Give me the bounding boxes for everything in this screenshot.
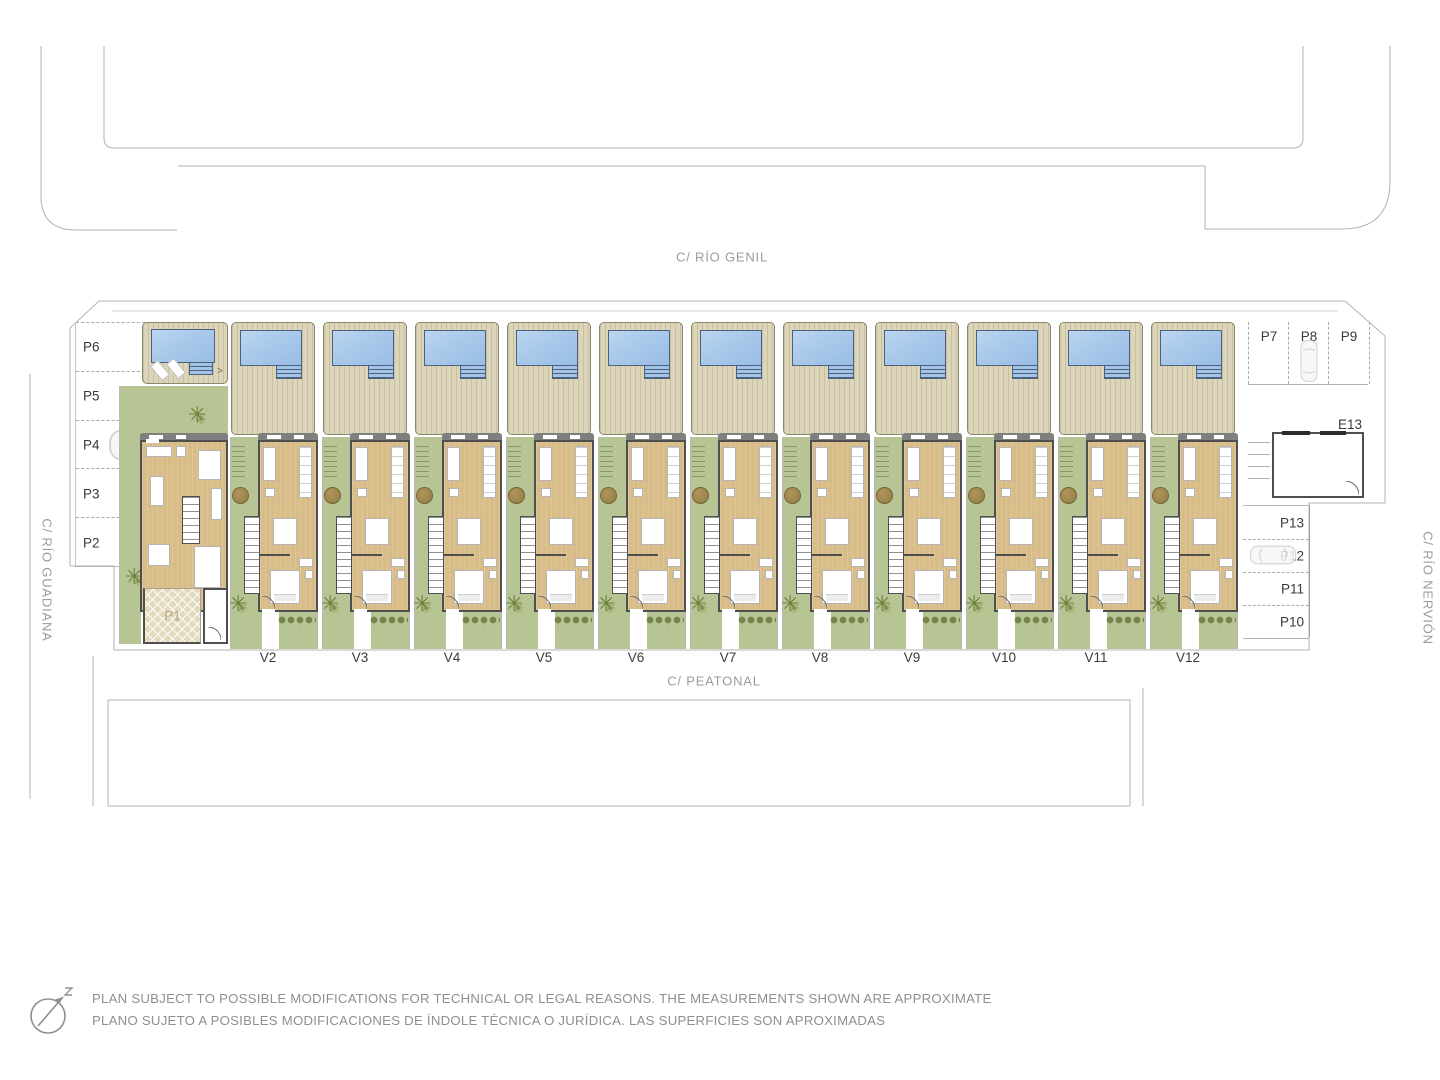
pool-deck <box>507 322 591 435</box>
bathroom-wall <box>996 554 1026 556</box>
door-opening <box>446 609 459 613</box>
villa-label: V3 <box>338 650 382 665</box>
dining-table <box>198 450 221 480</box>
entry-path <box>630 609 647 649</box>
kitchen <box>146 446 172 457</box>
villa-unit: V6 <box>596 320 688 664</box>
entry-porch <box>203 588 228 644</box>
kitchen <box>667 446 680 498</box>
tree-icon <box>1152 487 1169 504</box>
dining-table <box>1101 518 1125 545</box>
pool-steps <box>1104 365 1130 379</box>
tree-icon <box>416 487 433 504</box>
villa-label: V12 <box>1166 650 1210 665</box>
bathroom-wall <box>352 554 382 556</box>
toilet <box>305 570 313 579</box>
side-table <box>817 488 827 497</box>
kitchen <box>851 446 864 498</box>
side-table <box>1093 488 1103 497</box>
kitchen <box>299 446 312 498</box>
pool-steps <box>736 365 762 379</box>
sofa <box>355 447 368 481</box>
private-parking-space: P1 <box>143 588 201 644</box>
villa-label: V9 <box>890 650 934 665</box>
dining-table <box>549 518 573 545</box>
swimming-pool <box>1160 330 1222 366</box>
street-label-rio-genil: C/ RÍO GENIL <box>676 250 768 265</box>
door-arc <box>538 596 551 609</box>
villa-unit: V11 <box>1056 320 1148 664</box>
dining-table <box>641 518 665 545</box>
toilet <box>857 570 865 579</box>
dining-table <box>457 518 481 545</box>
parking-strip-bottom-right: P13 P12 P11 P10 <box>1243 505 1310 637</box>
villa-unit: V3 <box>320 320 412 664</box>
bathroom-sink <box>299 558 313 567</box>
stairs <box>1072 516 1088 594</box>
villa-label: V4 <box>430 650 474 665</box>
house-floorplan <box>1086 440 1146 612</box>
toilet <box>397 570 405 579</box>
toilet <box>1133 570 1141 579</box>
parking-stall-label: P6 <box>83 340 100 355</box>
bathroom-wall <box>720 554 750 556</box>
swimming-pool <box>516 330 578 366</box>
palm-tree-icon <box>1057 593 1075 615</box>
toilet <box>1225 570 1233 579</box>
pool-deck: > <box>142 322 228 384</box>
villa-unit: V9 <box>872 320 964 664</box>
house-floorplan <box>902 440 962 612</box>
kitchen <box>1127 446 1140 498</box>
tree-icon <box>876 487 893 504</box>
palm-tree-icon <box>873 593 891 615</box>
storage-room-label: E13 <box>1338 417 1362 432</box>
villa-unit-end: > P1 <box>115 320 228 664</box>
bathroom-sink <box>667 558 681 567</box>
tree-icon <box>600 487 617 504</box>
door-opening <box>630 609 643 613</box>
bathroom-sink <box>759 558 773 567</box>
stairs <box>520 516 536 594</box>
door-opening <box>262 609 275 613</box>
shrubs <box>278 615 316 627</box>
parking-stall: P7 <box>1248 322 1289 384</box>
shrubs <box>370 615 408 627</box>
swimming-pool <box>884 330 946 366</box>
kitchen <box>943 446 956 498</box>
house-floorplan <box>442 440 502 612</box>
villa-unit: V4 <box>412 320 504 664</box>
pool-deck <box>231 322 315 435</box>
pool-deck <box>875 322 959 435</box>
pergola <box>1152 443 1165 477</box>
disclaimer-line-es: PLANO SUJETO A POSIBLES MODIFICACIONES D… <box>92 1013 885 1028</box>
site-plan: C/ RÍO GENIL C/ RÍO GUADIANA C/ RÍO NERV… <box>0 0 1440 1080</box>
toilet <box>489 570 497 579</box>
door-opening <box>354 609 367 613</box>
sofa <box>1183 447 1196 481</box>
entry-path <box>722 609 739 649</box>
kitchen <box>1035 446 1048 498</box>
house-floorplan <box>534 440 594 612</box>
door-opening <box>146 439 159 443</box>
entry-path <box>1090 609 1107 649</box>
door-arc <box>446 596 459 609</box>
sofa <box>999 447 1012 481</box>
swimming-pool <box>976 330 1038 366</box>
swimming-pool <box>700 330 762 366</box>
shrubs <box>646 615 684 627</box>
dining-table <box>1009 518 1033 545</box>
side-table <box>633 488 643 497</box>
door-arc <box>814 596 827 609</box>
door-opening <box>1182 609 1195 613</box>
villa-label: V8 <box>798 650 842 665</box>
palm-tree-icon <box>781 593 799 615</box>
bathroom-wall <box>628 554 658 556</box>
tree-icon <box>508 487 525 504</box>
villa-label: V6 <box>614 650 658 665</box>
bathroom-wall <box>260 554 290 556</box>
bathroom-wall <box>1180 554 1210 556</box>
shrubs <box>462 615 500 627</box>
palm-tree-icon <box>321 593 339 615</box>
palm-tree-icon <box>229 593 247 615</box>
north-arrow-icon <box>22 984 78 1042</box>
bed <box>194 546 221 588</box>
door-arc <box>906 596 919 609</box>
toilet <box>673 570 681 579</box>
garden <box>119 386 141 644</box>
sofa <box>815 447 828 481</box>
parking-stall-label: P11 <box>1281 581 1304 596</box>
door-arc <box>630 596 643 609</box>
tree-icon <box>968 487 985 504</box>
pool-deck <box>415 322 499 435</box>
entry-path <box>446 609 463 649</box>
door-opening <box>722 609 735 613</box>
villa-label: V10 <box>982 650 1026 665</box>
side-table <box>1185 488 1195 497</box>
pergola <box>600 443 613 477</box>
entry-path <box>998 609 1015 649</box>
palm-tree-icon <box>413 593 431 615</box>
swimming-pool <box>608 330 670 366</box>
pool-deck <box>323 322 407 435</box>
entry-path <box>538 609 555 649</box>
parking-stall: P13 <box>1243 506 1309 540</box>
kitchen <box>391 446 404 498</box>
door-arc <box>1090 596 1103 609</box>
villa-unit: V2 <box>228 320 320 664</box>
pool-deck <box>1151 322 1235 435</box>
villa-unit: V10 <box>964 320 1056 664</box>
door-opening <box>906 609 919 613</box>
palm-tree-icon <box>188 404 206 426</box>
palm-tree-icon <box>689 593 707 615</box>
parking-stall-label: P9 <box>1341 329 1358 344</box>
palm-tree-icon <box>965 593 983 615</box>
kitchen <box>483 446 496 498</box>
parking-stall-label: P10 <box>1280 614 1304 629</box>
tree-icon <box>232 487 249 504</box>
pergola <box>1060 443 1073 477</box>
villa-unit: V12 <box>1148 320 1240 664</box>
pergola <box>876 443 889 477</box>
street-label-peatonal: C/ PEATONAL <box>667 674 761 689</box>
bathroom-sink <box>391 558 405 567</box>
pool-deck <box>967 322 1051 435</box>
bathroom-sink <box>1127 558 1141 567</box>
villa-unit: V5 <box>504 320 596 664</box>
entry-path <box>906 609 923 649</box>
dining-table <box>365 518 389 545</box>
shrubs <box>554 615 592 627</box>
entry-path <box>814 609 831 649</box>
toilet <box>1041 570 1049 579</box>
pool-steps <box>1012 365 1038 379</box>
house-floorplan <box>626 440 686 612</box>
side-table <box>909 488 919 497</box>
door-arc <box>1345 481 1359 495</box>
pool-steps <box>1196 365 1222 379</box>
parking-stall-label: P13 <box>1280 515 1304 530</box>
parking-stall: P9 <box>1328 322 1370 384</box>
sofa <box>539 447 552 481</box>
shrubs <box>830 615 868 627</box>
sofa <box>150 476 164 506</box>
door-arc <box>722 596 735 609</box>
swimming-pool <box>332 330 394 366</box>
pool-steps <box>828 365 854 379</box>
house-floorplan <box>718 440 778 612</box>
shrubs <box>738 615 776 627</box>
bathroom-wall <box>1088 554 1118 556</box>
pergola <box>324 443 337 477</box>
street-label-rio-nervion: C/ RÍO NERVIÓN <box>1421 531 1436 645</box>
pool-steps <box>368 365 394 379</box>
dining-table <box>825 518 849 545</box>
pool-steps <box>920 365 946 379</box>
entry-path <box>354 609 371 649</box>
parking-stall: P10 <box>1243 605 1309 639</box>
bathroom <box>148 544 170 566</box>
side-table <box>449 488 459 497</box>
pergola <box>508 443 521 477</box>
shrubs <box>922 615 960 627</box>
window <box>1320 431 1346 435</box>
pool-steps <box>276 365 302 379</box>
palm-tree-icon <box>1149 593 1167 615</box>
dining-table <box>1193 518 1217 545</box>
house-floorplan <box>994 440 1054 612</box>
kitchen <box>575 446 588 498</box>
stairs <box>704 516 720 594</box>
villa-label: V2 <box>246 650 290 665</box>
bathroom-wall <box>904 554 934 556</box>
window <box>1282 431 1310 435</box>
kitchen <box>176 446 186 457</box>
tree-icon <box>692 487 709 504</box>
bathroom-sink <box>851 558 865 567</box>
stairs <box>182 496 200 544</box>
door-opening <box>1090 609 1103 613</box>
stairs <box>888 516 904 594</box>
bathroom-sink <box>483 558 497 567</box>
tree-icon <box>324 487 341 504</box>
swimming-pool <box>151 329 215 363</box>
villa-label: V7 <box>706 650 750 665</box>
side-table <box>725 488 735 497</box>
door-arc <box>262 596 275 609</box>
pool-steps <box>460 365 486 379</box>
door-opening <box>814 609 827 613</box>
parking-stall-label: P5 <box>83 389 100 404</box>
door-opening <box>998 609 1011 613</box>
private-parking-label: P1 <box>164 608 181 623</box>
bathroom-wall <box>812 554 842 556</box>
door-arc <box>208 627 221 640</box>
parking-stall: P12 <box>1243 539 1309 573</box>
palm-tree-icon <box>505 593 523 615</box>
pool-steps <box>189 362 213 375</box>
stairs <box>1164 516 1180 594</box>
villa-unit: V8 <box>780 320 872 664</box>
toilet <box>949 570 957 579</box>
pool-steps <box>552 365 578 379</box>
car-icon <box>1298 339 1320 383</box>
pergola <box>784 443 797 477</box>
sofa <box>263 447 276 481</box>
house-floorplan <box>1178 440 1238 612</box>
side-table <box>265 488 275 497</box>
side-table <box>541 488 551 497</box>
villa-unit: V7 <box>688 320 780 664</box>
tree-icon <box>1060 487 1077 504</box>
parking-stall-label: P2 <box>83 535 100 550</box>
pergola-dashes <box>1248 442 1270 490</box>
swimming-pool <box>1068 330 1130 366</box>
stairs <box>336 516 352 594</box>
swimming-pool <box>240 330 302 366</box>
kitchen <box>1219 446 1232 498</box>
pergola <box>416 443 429 477</box>
swimming-pool <box>792 330 854 366</box>
parking-stall: P8 <box>1288 322 1329 384</box>
storage-room <box>1272 432 1364 498</box>
pool-deck <box>783 322 867 435</box>
door-arc <box>998 596 1011 609</box>
shrubs <box>1198 615 1236 627</box>
car-icon <box>1247 544 1299 566</box>
stairs <box>612 516 628 594</box>
villa-label: V11 <box>1074 650 1118 665</box>
palm-tree-icon <box>597 593 615 615</box>
house-floorplan <box>350 440 410 612</box>
parking-stall-label: P7 <box>1261 329 1278 344</box>
door-arc <box>354 596 367 609</box>
pergola <box>968 443 981 477</box>
pool-steps <box>644 365 670 379</box>
toilet <box>581 570 589 579</box>
shrubs <box>1014 615 1052 627</box>
toilet <box>765 570 773 579</box>
bathroom-sink <box>1035 558 1049 567</box>
entry-path <box>1182 609 1199 649</box>
tree-icon <box>784 487 801 504</box>
pool-deck <box>1059 322 1143 435</box>
stairs <box>796 516 812 594</box>
stairs <box>428 516 444 594</box>
shrubs <box>1106 615 1144 627</box>
sofa <box>1091 447 1104 481</box>
disclaimer-line-en: PLAN SUBJECT TO POSSIBLE MODIFICATIONS F… <box>92 991 992 1006</box>
sofa <box>907 447 920 481</box>
entry-path <box>262 609 279 649</box>
parking-stall-label: P3 <box>83 486 100 501</box>
shower-icon: > <box>217 366 223 377</box>
door-arc <box>1182 596 1195 609</box>
house-floorplan <box>258 440 318 612</box>
door-opening <box>538 609 551 613</box>
dining-table <box>273 518 297 545</box>
parking-stall-label: P4 <box>83 437 100 452</box>
villa-label: V5 <box>522 650 566 665</box>
dining-table <box>733 518 757 545</box>
parking-stall: P11 <box>1243 572 1309 606</box>
side-table <box>1001 488 1011 497</box>
pergola <box>232 443 245 477</box>
bathroom-sink <box>575 558 589 567</box>
bathroom-sink <box>943 558 957 567</box>
dining-table <box>917 518 941 545</box>
stairs <box>244 516 260 594</box>
sofa <box>631 447 644 481</box>
stairs <box>980 516 996 594</box>
sofa <box>447 447 460 481</box>
parking-strip-top-right: P7 P8 P9 <box>1248 322 1368 385</box>
kitchen-counter <box>211 488 222 520</box>
bathroom-sink <box>1219 558 1233 567</box>
bathroom-wall <box>536 554 566 556</box>
street-label-rio-guadiana: C/ RÍO GUADIANA <box>40 518 55 641</box>
house-floorplan <box>810 440 870 612</box>
pool-deck <box>691 322 775 435</box>
house-floorplan <box>140 440 228 612</box>
kitchen <box>759 446 772 498</box>
side-table <box>357 488 367 497</box>
sofa <box>723 447 736 481</box>
swimming-pool <box>424 330 486 366</box>
pool-deck <box>599 322 683 435</box>
bathroom-wall <box>444 554 474 556</box>
pergola <box>692 443 705 477</box>
